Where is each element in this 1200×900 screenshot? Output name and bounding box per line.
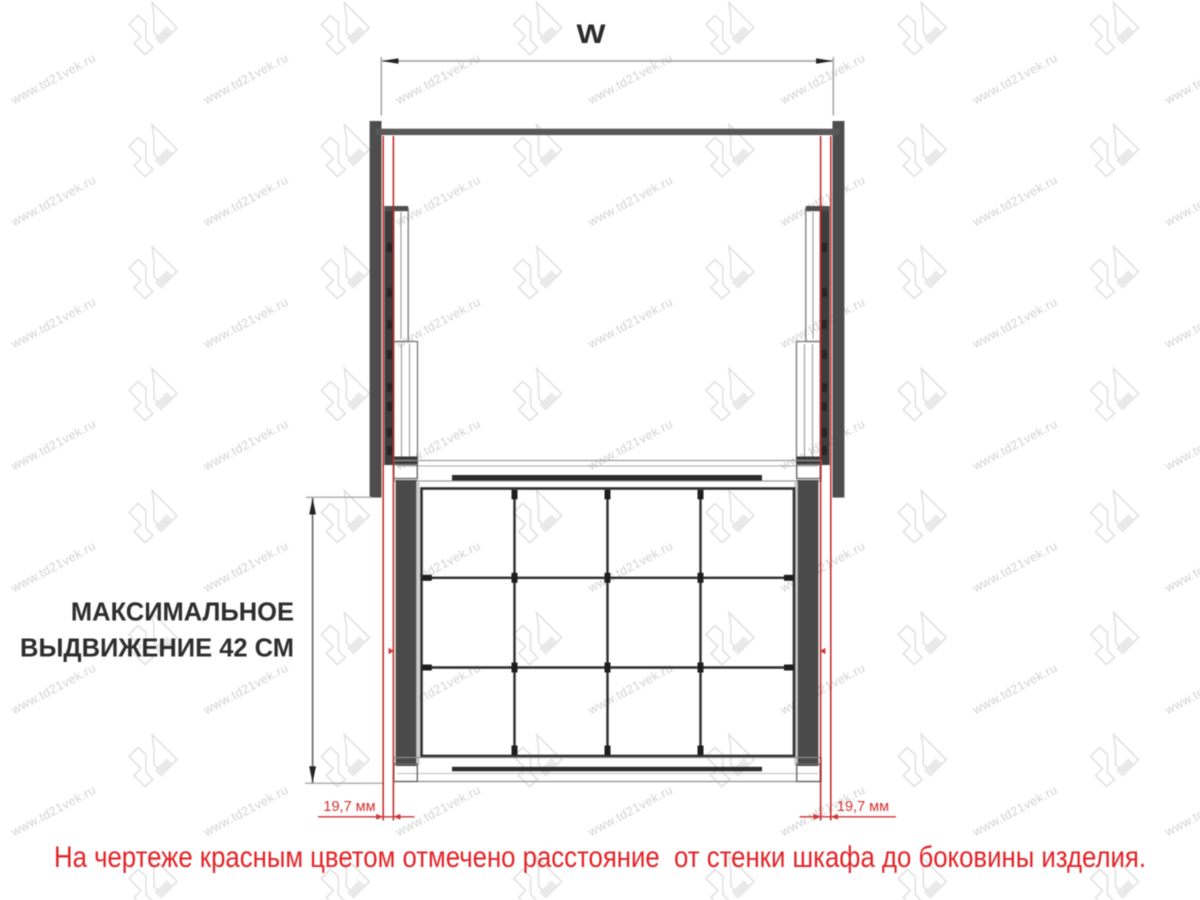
svg-text:19,7 мм: 19,7 мм xyxy=(323,799,375,815)
svg-text:W: W xyxy=(577,19,607,49)
svg-text:На чертеже красным цветом отме: На чертеже красным цветом отмечено расст… xyxy=(54,841,1146,874)
svg-text:МАКСИМАЛЬНОЕ: МАКСИМАЛЬНОЕ xyxy=(71,599,294,627)
svg-text:ВЫДВИЖЕНИЕ 42 СМ: ВЫДВИЖЕНИЕ 42 СМ xyxy=(20,635,294,663)
svg-text:19,7 мм: 19,7 мм xyxy=(837,799,889,815)
